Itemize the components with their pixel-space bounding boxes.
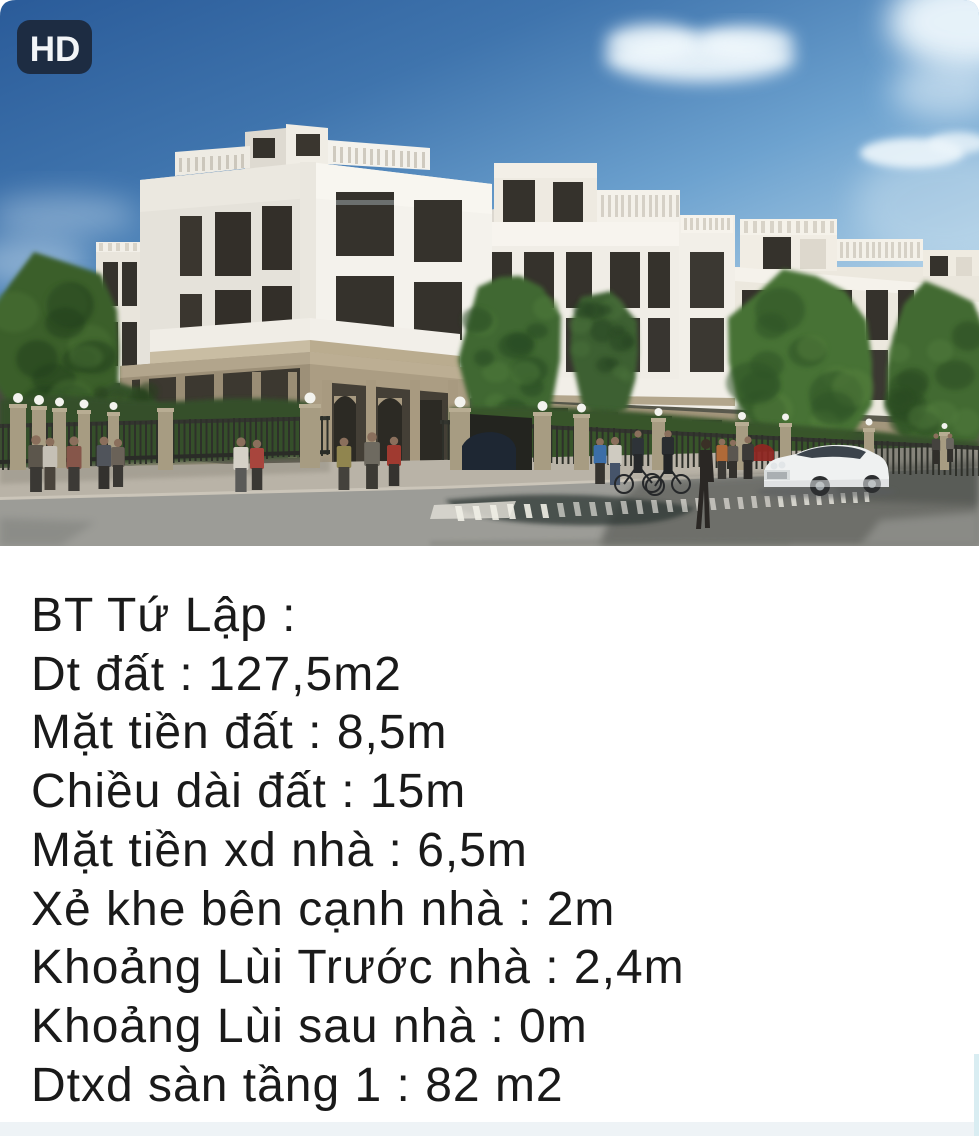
svg-text:HD: HD [30,30,81,69]
